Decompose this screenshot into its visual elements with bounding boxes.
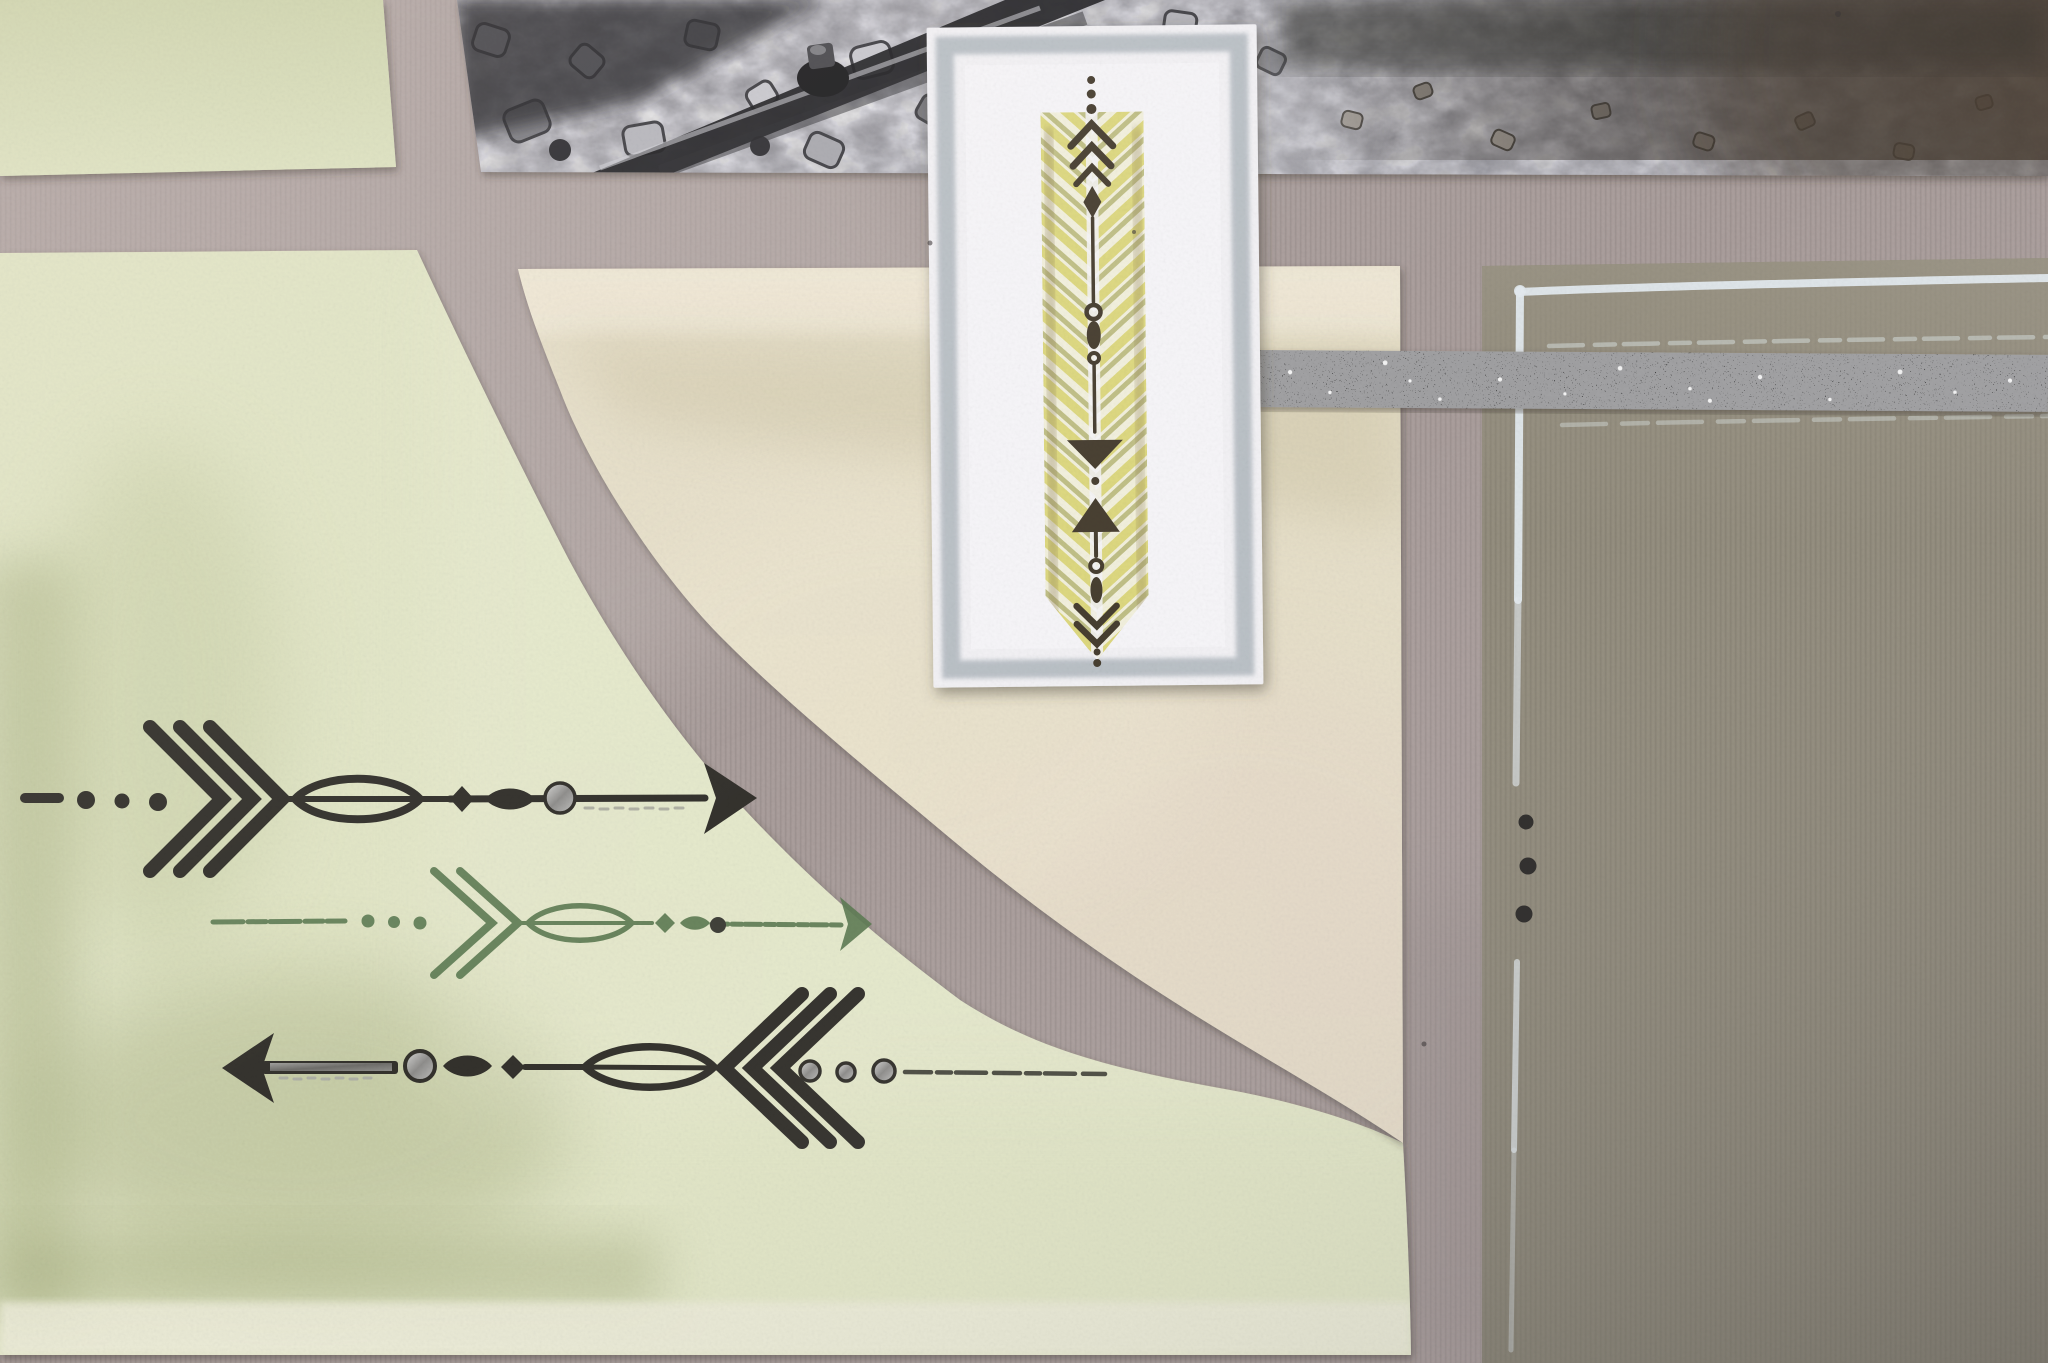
scrapbook-page-photo: [0, 0, 2048, 1363]
lighting-overlay: [0, 0, 2048, 1363]
